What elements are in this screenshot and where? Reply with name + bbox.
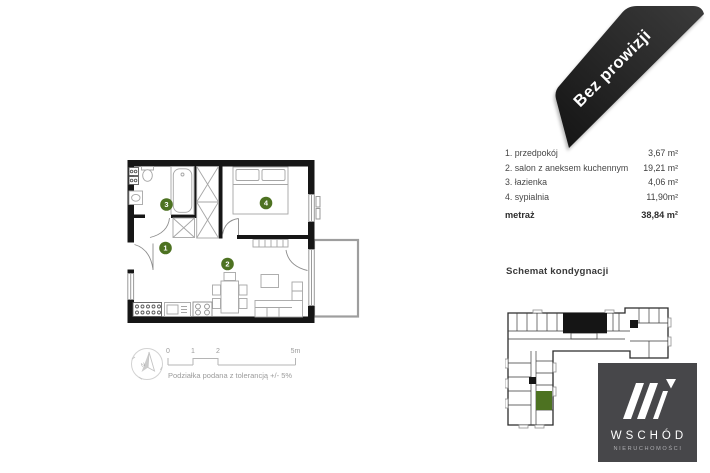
stair-core — [630, 320, 638, 328]
coffee-table-icon — [261, 275, 279, 288]
apartment-floor-plan: 1 2 3 4 — [125, 150, 365, 340]
room-label: 4. sypialnia — [505, 192, 549, 202]
balcony — [314, 240, 358, 317]
dark-unit — [563, 313, 607, 333]
compass-icon: N — [127, 344, 167, 384]
radiator-icon — [253, 240, 288, 248]
kitchen-cabinet-icon — [133, 303, 162, 317]
logo: WSCHÓD NIERUCHOMOŚCI — [598, 363, 697, 462]
floor-plan-page: 1 2 3 4 N 0 1 2 5m Podziałka podana — [0, 0, 710, 473]
dining-table-icon — [213, 273, 248, 314]
bedroom-window-icon — [309, 195, 320, 222]
left-window-icon — [128, 274, 134, 300]
total-area-row: metraż 38,84 m² — [505, 207, 678, 223]
room-area: 4,06 m² — [648, 177, 678, 187]
oven-counter-icon — [165, 303, 191, 317]
bed-icon — [233, 167, 288, 214]
room-label: 2. salon z aneksem kuchennym — [505, 163, 628, 173]
scale-ruler — [168, 358, 296, 365]
scale-note: Podziałka podana z tolerancją +/- 5% — [168, 371, 292, 380]
schematic-title: Schemat kondygnacji — [506, 266, 608, 277]
ribbon-shape — [556, 6, 705, 148]
room-number-3: 3 — [164, 200, 168, 209]
wardrobe-icon — [197, 167, 219, 239]
total-area: 38,84 m² — [641, 210, 678, 220]
scale-tick-2: 2 — [216, 348, 220, 355]
toilet-icon — [142, 167, 154, 182]
room-label: 3. łazienka — [505, 177, 547, 187]
sink-icon — [129, 191, 143, 205]
bathtub-icon — [171, 167, 194, 215]
room-row-4: 4. sypialnia 11,90m² — [505, 190, 678, 205]
scale-bar: 0 1 2 5m Podziałka podana z tolerancją +… — [162, 345, 312, 385]
stair-core — [529, 377, 536, 384]
logo-name: WSCHÓD — [611, 429, 687, 442]
logo-subtitle: NIERUCHOMOŚCI — [614, 444, 683, 452]
room-number-1: 1 — [163, 244, 167, 253]
room-row-3: 3. łazienka 4,06 m² — [505, 175, 678, 190]
scale-tick-5m: 5m — [291, 348, 301, 355]
total-label: metraż — [505, 210, 535, 220]
logo-w-icon — [623, 379, 676, 419]
room-number-2: 2 — [225, 260, 229, 269]
closet-icon — [173, 218, 195, 238]
room-area: 19,21 m² — [643, 163, 678, 173]
balcony-door-icon — [309, 250, 315, 306]
entrance-opening — [127, 243, 136, 270]
scale-tick-1: 1 — [191, 348, 195, 355]
highlighted-unit — [536, 391, 552, 410]
room-row-2: 2. salon z aneksem kuchennym 19,21 m² — [505, 161, 678, 176]
ribbon-banner: Bez prowizji — [550, 0, 710, 158]
scale-tick-0: 0 — [166, 348, 170, 355]
room-area: 11,90m² — [646, 192, 678, 202]
stove-icon — [193, 302, 212, 317]
